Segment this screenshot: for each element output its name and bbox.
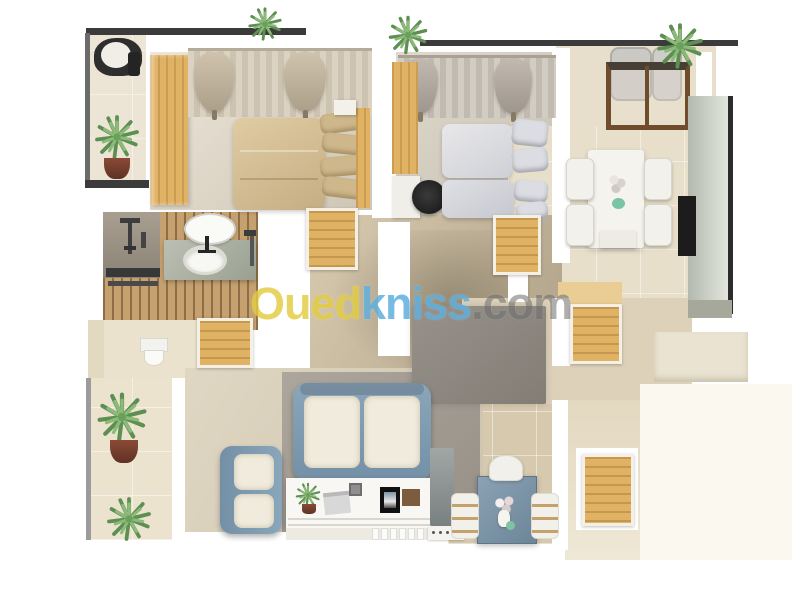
sofa-back-shadow <box>300 383 424 395</box>
dining-chair <box>566 204 594 246</box>
pillow <box>511 146 549 173</box>
watermark-oued: Oued <box>250 278 361 329</box>
stove-knob <box>439 531 442 534</box>
railing-bottom-left <box>86 378 91 540</box>
sofa-cushion <box>364 396 420 468</box>
railing-left <box>85 33 90 185</box>
laptop <box>323 491 351 516</box>
green-cup <box>506 521 515 530</box>
hand-shower <box>141 232 146 248</box>
tv-picture <box>384 492 396 508</box>
plant-icon <box>246 4 284 44</box>
watermark-kniss: kniss <box>361 278 471 329</box>
bottle <box>408 528 415 540</box>
kitchen-unit-edge <box>728 96 733 314</box>
plant-pot <box>302 504 316 514</box>
floorplan-render: Ouedkniss.com <box>0 0 800 600</box>
bed-2b-gray <box>442 180 514 218</box>
shower-knob <box>124 246 136 250</box>
plant-icon <box>386 12 430 58</box>
dining-chair <box>644 158 672 200</box>
bench-white <box>600 230 636 248</box>
door-bedroom-2 <box>493 215 541 275</box>
dining-chair <box>644 204 672 246</box>
bottle <box>390 528 397 540</box>
bed-1-crease <box>240 150 318 152</box>
wardrobe-bedroom-1 <box>150 55 188 205</box>
stove-knob <box>432 531 435 534</box>
towel-bar <box>106 268 160 277</box>
wall-toilet-left <box>88 320 104 378</box>
wardrobe-bedroom-2 <box>392 62 418 174</box>
sofa-cushion <box>234 454 274 490</box>
wall-cream-bottom-right <box>640 384 792 560</box>
nightstand <box>334 100 356 115</box>
door-bathroom <box>197 318 253 368</box>
plant-icon <box>102 494 156 544</box>
sofa-cushion <box>234 494 274 528</box>
plant-icon <box>654 18 706 74</box>
bottle <box>417 528 424 540</box>
breakfast-chair <box>451 493 479 539</box>
console-shelf-line <box>288 518 432 520</box>
door-bottom-hall <box>582 454 634 526</box>
side-table-black <box>128 52 140 76</box>
bath-fixture <box>250 236 254 266</box>
bottle <box>399 528 406 540</box>
table-centerpiece-flowers <box>607 172 627 194</box>
door-hallway <box>570 304 622 364</box>
bottle <box>381 528 388 540</box>
console-shelf-line <box>288 524 432 526</box>
plant-icon <box>94 386 150 448</box>
railing-balcony-bottom-edge <box>85 180 149 188</box>
decor-box-brown <box>402 489 420 506</box>
breakfast-chair <box>531 493 559 539</box>
bed-1-crease <box>240 178 318 180</box>
chair-cushion <box>101 42 131 68</box>
breakfast-chair <box>489 455 523 481</box>
centerpiece-green-cup <box>612 198 625 209</box>
window-mullion <box>645 66 649 126</box>
towel-bar <box>108 281 158 286</box>
dining-chair <box>566 158 594 200</box>
watermark-com: .com <box>471 278 572 329</box>
headboard-wood <box>356 108 370 208</box>
toilet-bowl <box>144 350 164 366</box>
pillow <box>513 179 549 204</box>
stove-knob <box>446 531 449 534</box>
bed-2a-gray <box>442 124 512 178</box>
kitchen-unit-base <box>688 300 732 318</box>
door-bedroom-1 <box>306 208 358 270</box>
faucet <box>198 250 216 253</box>
bottle <box>372 528 379 540</box>
bed-1-beige <box>233 118 325 210</box>
vanity-mirror <box>184 213 236 245</box>
watermark: Ouedkniss.com <box>250 281 572 326</box>
photo-frame <box>349 483 362 496</box>
wall-block-right <box>654 332 748 382</box>
wall-tv-black <box>678 196 696 256</box>
office-chair <box>412 180 446 214</box>
pillow <box>511 118 550 148</box>
sofa-cushion <box>304 396 360 468</box>
